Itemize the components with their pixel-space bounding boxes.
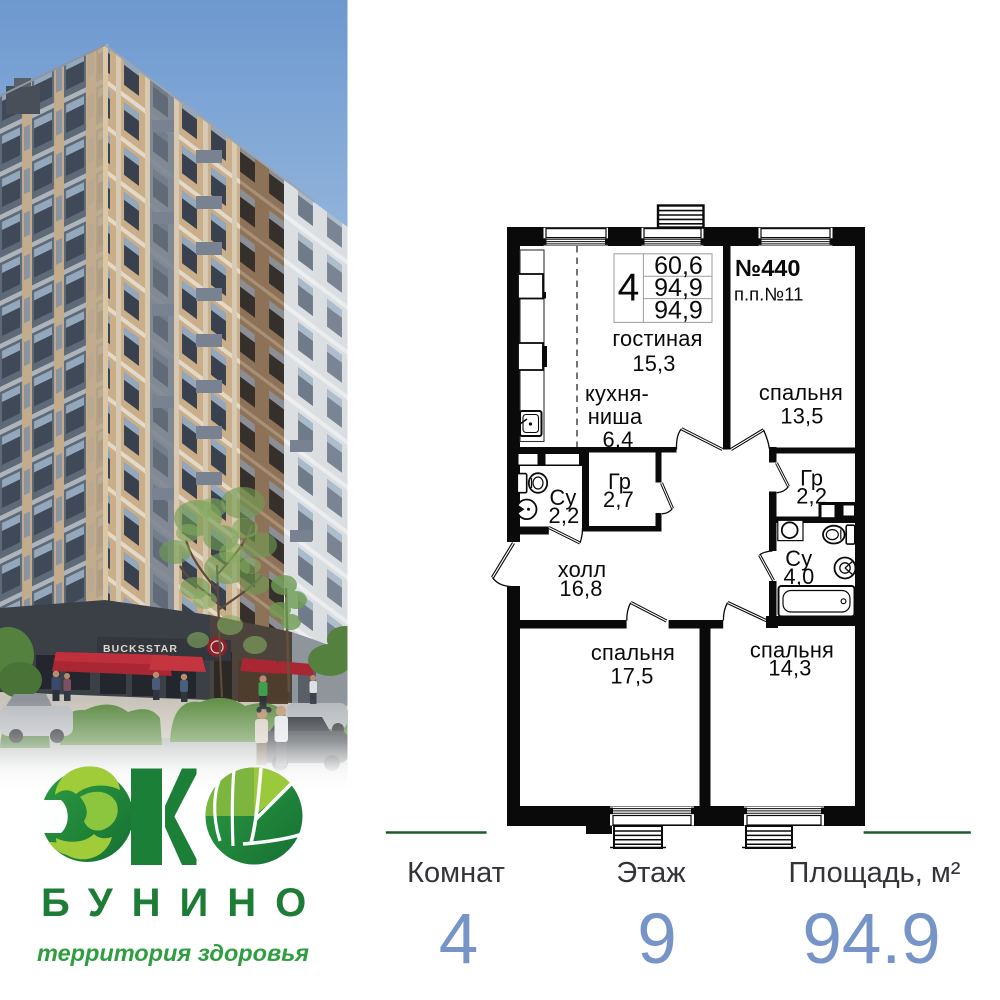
svg-text:6,4: 6,4 [603,427,634,452]
svg-text:9: 9 [637,900,677,979]
svg-text:кухня-: кухня- [585,381,649,406]
svg-text:Этаж: Этаж [616,857,686,889]
svg-text:БУНИНО: БУНИНО [41,881,325,925]
svg-text:п.п.№11: п.п.№11 [734,284,803,305]
svg-text:2,2: 2,2 [549,503,580,528]
svg-text:2,7: 2,7 [603,487,634,512]
svg-text:4: 4 [439,900,479,979]
svg-text:территория здоровья: территория здоровья [37,940,309,966]
svg-text:15,3: 15,3 [632,351,675,376]
svg-text:спальня: спальня [759,380,843,405]
svg-text:4,0: 4,0 [784,564,815,589]
svg-text:14,3: 14,3 [768,656,811,681]
svg-text:Комнат: Комнат [407,857,505,889]
svg-text:17,5: 17,5 [610,664,653,689]
svg-text:спальня: спальня [591,640,675,665]
svg-text:ниша: ниша [588,404,643,429]
svg-text:Площадь, м²: Площадь, м² [789,857,961,889]
svg-text:94.9: 94.9 [802,900,940,979]
svg-text:BUCKSSTAR: BUCKSSTAR [103,643,178,655]
svg-text:№440: №440 [735,255,800,281]
svg-text:13,5: 13,5 [780,404,823,429]
svg-text:16,8: 16,8 [559,576,602,601]
svg-text:2,2: 2,2 [796,484,827,509]
svg-text:гостиная: гостиная [612,326,702,351]
svg-text:94,9: 94,9 [654,297,703,325]
svg-text:4: 4 [618,267,640,310]
